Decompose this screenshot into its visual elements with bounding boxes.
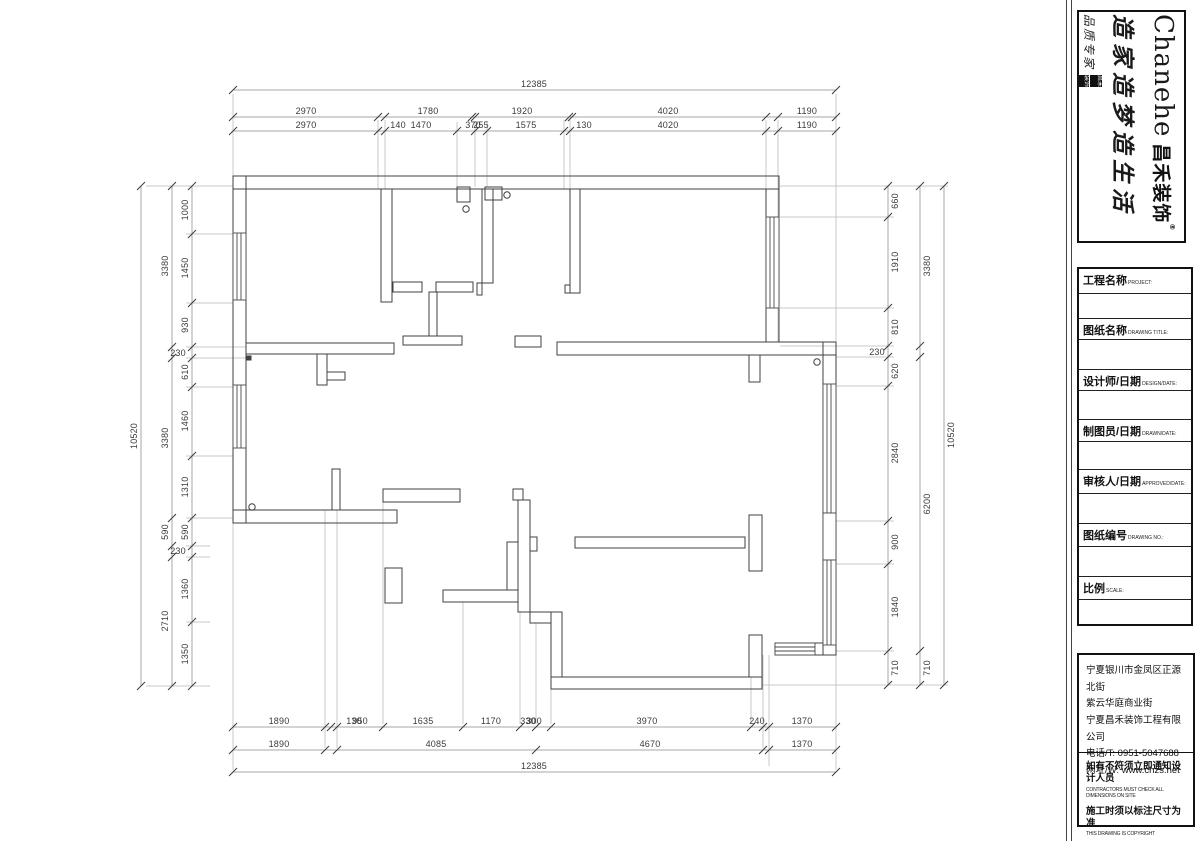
titleblock-row-drawing-title: 图纸名称DRAWING TITLE: xyxy=(1079,319,1191,340)
titleblock-sublabel: SCALE: xyxy=(1106,588,1124,594)
dim-label: 1190 xyxy=(797,106,817,116)
titleblock-field-drawing-no xyxy=(1079,547,1191,577)
door-hinge-circle xyxy=(504,192,510,198)
dim-label: 10520 xyxy=(129,423,139,449)
titleblock-row-designer: 设计师/日期DESIGN/DATE: xyxy=(1079,370,1191,391)
dim-label: 1780 xyxy=(418,106,439,116)
notice-en-1: CONTRACTORS MUST CHECK ALL DIMENSIONS ON… xyxy=(1086,787,1187,800)
titleblock-label: 设计师/日期 xyxy=(1083,376,1141,388)
dim-label: 300 xyxy=(526,716,542,726)
brand-name-line: Chanehe 昌禾装饰® xyxy=(1148,14,1178,239)
titleblock-field-designer xyxy=(1079,391,1191,420)
company-name: 宁夏昌禾装饰工程有限公司 xyxy=(1086,713,1187,746)
walls xyxy=(233,176,836,689)
brand-side-line: 品质专家 昌禾 装饰 xyxy=(1077,14,1102,239)
dim-label: 1920 xyxy=(512,106,533,116)
dim-label: 660 xyxy=(890,193,900,209)
titleblock-sublabel: DRAWING NO.: xyxy=(1128,535,1164,541)
titleblock-label: 制图员/日期 xyxy=(1083,426,1141,438)
dim-label: 3380 xyxy=(160,256,170,277)
dim-label: 3970 xyxy=(637,716,658,726)
door-hinge-circle xyxy=(249,504,255,510)
titleblock-sublabel: DESIGN/DATE: xyxy=(1142,381,1177,387)
windows xyxy=(233,217,836,655)
titleblock-sublabel: PROJECT: xyxy=(1128,280,1152,286)
dim-label: 2840 xyxy=(890,443,900,464)
titleblock-row-drawing-no: 图纸编号DRAWING NO.: xyxy=(1079,524,1191,547)
dim-label: 1470 xyxy=(411,120,432,130)
seal-stamp-icon: 昌禾 xyxy=(1090,75,1102,87)
dim-label: 10520 xyxy=(946,422,956,448)
notice-zh-2: 施工时须以标注尺寸为准 xyxy=(1086,806,1187,831)
titleblock-field-project xyxy=(1079,294,1191,319)
dim-label: 710 xyxy=(890,660,900,676)
brand-slogan-calligraphy: 造家造梦造生活 xyxy=(1108,14,1142,239)
dim-label: 230 xyxy=(869,347,885,357)
dim-label: 4020 xyxy=(658,106,679,116)
dim-label: 1575 xyxy=(516,120,537,130)
dim-label: 1635 xyxy=(413,716,434,726)
dim-label: 1890 xyxy=(269,739,290,749)
dim-label: 230 xyxy=(170,348,186,358)
titleblock-sublabel: DRAWN/DATE: xyxy=(1142,431,1176,437)
titleblock-label: 图纸编号 xyxy=(1083,530,1127,542)
dim-label: 900 xyxy=(890,534,900,550)
dim-label: 3380 xyxy=(160,428,170,449)
titleblock-row-scale: 比例SCALE: xyxy=(1079,577,1191,600)
dim-label: 620 xyxy=(890,363,900,379)
dim-label: 1370 xyxy=(792,739,813,749)
company-address-line2: 紫云华庭商业街 xyxy=(1086,696,1187,713)
dim-label: 590 xyxy=(160,524,170,540)
titleblock-row-approver: 审核人/日期APPROVED/DATE: xyxy=(1079,470,1191,494)
dim-label: 710 xyxy=(922,660,932,676)
company-info: 宁夏银川市金凤区正源北街 紫云华庭商业街 宁夏昌禾装饰工程有限公司 电话/T: … xyxy=(1079,655,1193,753)
dim-label: 255 xyxy=(473,120,489,130)
dim-label: 2710 xyxy=(160,611,170,632)
dim-label: 2970 xyxy=(296,106,317,116)
dim-label: 930 xyxy=(180,317,190,333)
dim-label: 140 xyxy=(390,120,406,130)
title-block-panel: Chanehe 昌禾装饰® 造家造梦造生活 品质专家 昌禾 装饰 工程名称PRO… xyxy=(1072,0,1198,841)
dim-label: 1450 xyxy=(180,258,190,279)
dim-label: 1370 xyxy=(792,716,813,726)
titleblock-label: 图纸名称 xyxy=(1083,325,1127,337)
titleblock-field-scale xyxy=(1079,600,1191,624)
titleblock-field-draftsman xyxy=(1079,442,1191,470)
titleblock-row-project: 工程名称PROJECT: xyxy=(1079,269,1191,294)
brand-logo-box: Chanehe 昌禾装饰® 造家造梦造生活 品质专家 昌禾 装饰 xyxy=(1077,10,1186,243)
titleblock-table: 工程名称PROJECT: 图纸名称DRAWING TITLE: 设计师/日期DE… xyxy=(1077,267,1193,626)
company-address-line1: 宁夏银川市金凤区正源北街 xyxy=(1086,663,1187,696)
dim-label: 12385 xyxy=(521,761,547,771)
dim-label: 4020 xyxy=(658,120,679,130)
dim-label: 130 xyxy=(576,120,592,130)
dim-label: 1310 xyxy=(180,477,190,498)
dim-label: 1170 xyxy=(481,716,501,726)
brand-side-text: 品质专家 xyxy=(1081,14,1098,70)
brand-logo-english: Chanehe xyxy=(1148,14,1178,137)
panel-separator-line xyxy=(1066,0,1067,841)
dim-label: 4085 xyxy=(426,739,447,749)
brand-rotated-content: Chanehe 昌禾装饰® 造家造梦造生活 品质专家 昌禾 装饰 xyxy=(1077,12,1180,241)
dim-label: 6200 xyxy=(922,494,932,515)
dim-label: 230 xyxy=(170,546,186,556)
dim-label: 240 xyxy=(749,716,765,726)
dim-label: 810 xyxy=(890,319,900,335)
dim-label: 4670 xyxy=(640,739,661,749)
titleblock-label: 审核人/日期 xyxy=(1083,476,1141,488)
drawing-sheet: 1238529701780192040201190297014014703702… xyxy=(0,0,1200,841)
dim-label: 12385 xyxy=(521,79,547,89)
dim-label: 1910 xyxy=(890,252,900,273)
dim-label: 3380 xyxy=(922,256,932,277)
titleblock-field-drawing-title xyxy=(1079,340,1191,370)
dim-label: 1840 xyxy=(890,597,900,618)
door-hinge-circle xyxy=(463,206,469,212)
notice-en-2: THIS DRAWING IS COPYRIGHT xyxy=(1086,831,1187,838)
titleblock-row-draftsman: 制图员/日期DRAWN/DATE: xyxy=(1079,420,1191,442)
dim-label: 610 xyxy=(180,364,190,380)
dim-label: 1460 xyxy=(180,411,190,432)
titleblock-label: 比例 xyxy=(1083,583,1105,595)
column-marker xyxy=(247,356,251,360)
registered-mark: ® xyxy=(1168,223,1176,231)
dim-label: 1190 xyxy=(797,120,817,130)
brand-seals: 昌禾 装饰 xyxy=(1077,75,1102,87)
titleblock-sublabel: DRAWING TITLE: xyxy=(1128,330,1168,336)
brand-logo-chinese: 昌禾装饰® xyxy=(1149,143,1176,231)
dim-label: 590 xyxy=(180,524,190,540)
dim-label: 1000 xyxy=(180,200,190,221)
door-frames xyxy=(247,187,820,510)
door-hinge-circle xyxy=(814,359,820,365)
dim-label: 950 xyxy=(352,716,368,726)
dim-label: 1890 xyxy=(269,716,290,726)
dim-label: 1360 xyxy=(180,579,190,600)
titleblock-field-approver xyxy=(1079,494,1191,524)
seal-stamp-icon: 装饰 xyxy=(1077,75,1089,87)
titleblock-label: 工程名称 xyxy=(1083,275,1127,287)
dim-label: 2970 xyxy=(296,120,317,130)
dim-label: 1350 xyxy=(180,644,190,665)
titleblock-sublabel: APPROVED/DATE: xyxy=(1142,481,1186,487)
company-info-box: 宁夏银川市金凤区正源北街 紫云华庭商业街 宁夏昌禾装饰工程有限公司 电话/T: … xyxy=(1077,653,1195,827)
drawing-notices: 如有不符须立即通知设计人员 CONTRACTORS MUST CHECK ALL… xyxy=(1079,753,1193,838)
